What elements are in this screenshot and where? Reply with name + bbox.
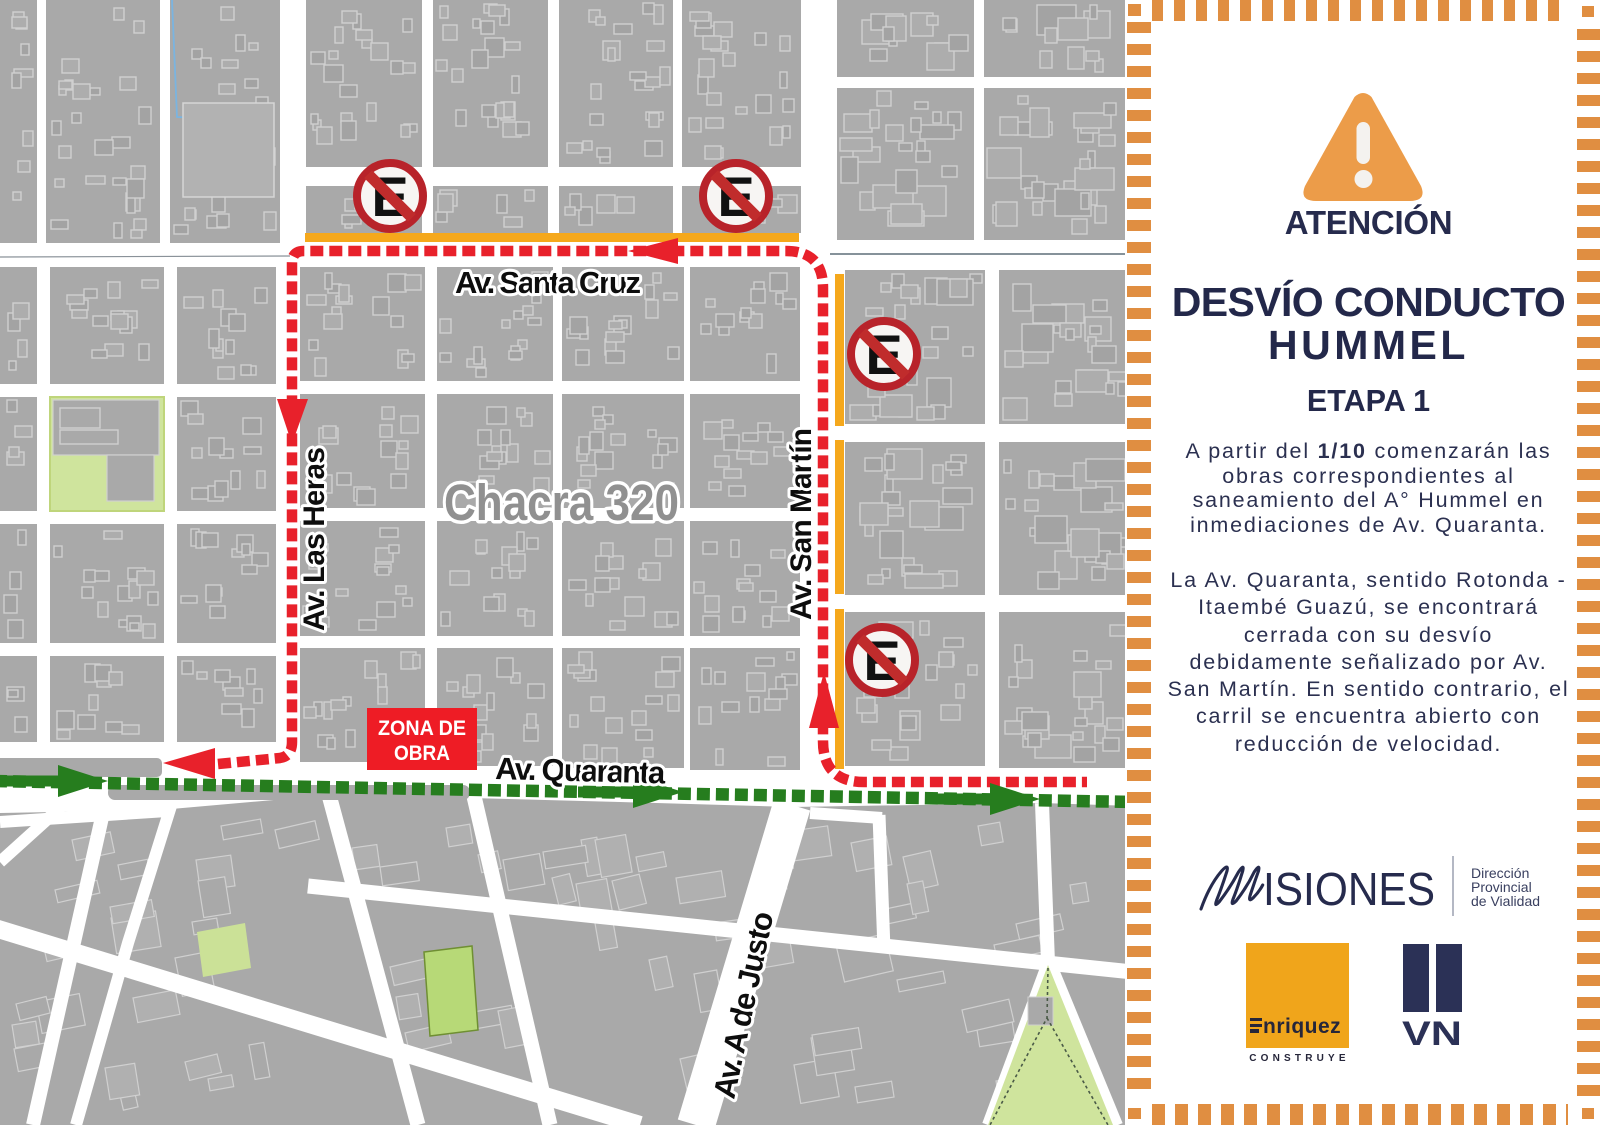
svg-text:Av. San Martín: Av. San Martín — [785, 428, 818, 620]
svg-text:de Vialidad: de Vialidad — [1471, 893, 1540, 909]
svg-text:Chacra 320: Chacra 320 — [444, 474, 679, 531]
svg-text:OBRA: OBRA — [394, 742, 450, 765]
svg-text:Av. Las Heras: Av. Las Heras — [298, 447, 331, 631]
svg-text:Av. Quaranta: Av. Quaranta — [495, 751, 667, 790]
svg-text:ISIONES: ISIONES — [1263, 863, 1435, 915]
svg-text:Av. Santa Cruz: Av. Santa Cruz — [455, 265, 641, 300]
svg-text:ZONA DE: ZONA DE — [378, 717, 466, 740]
svg-text:VN: VN — [1402, 1015, 1462, 1048]
